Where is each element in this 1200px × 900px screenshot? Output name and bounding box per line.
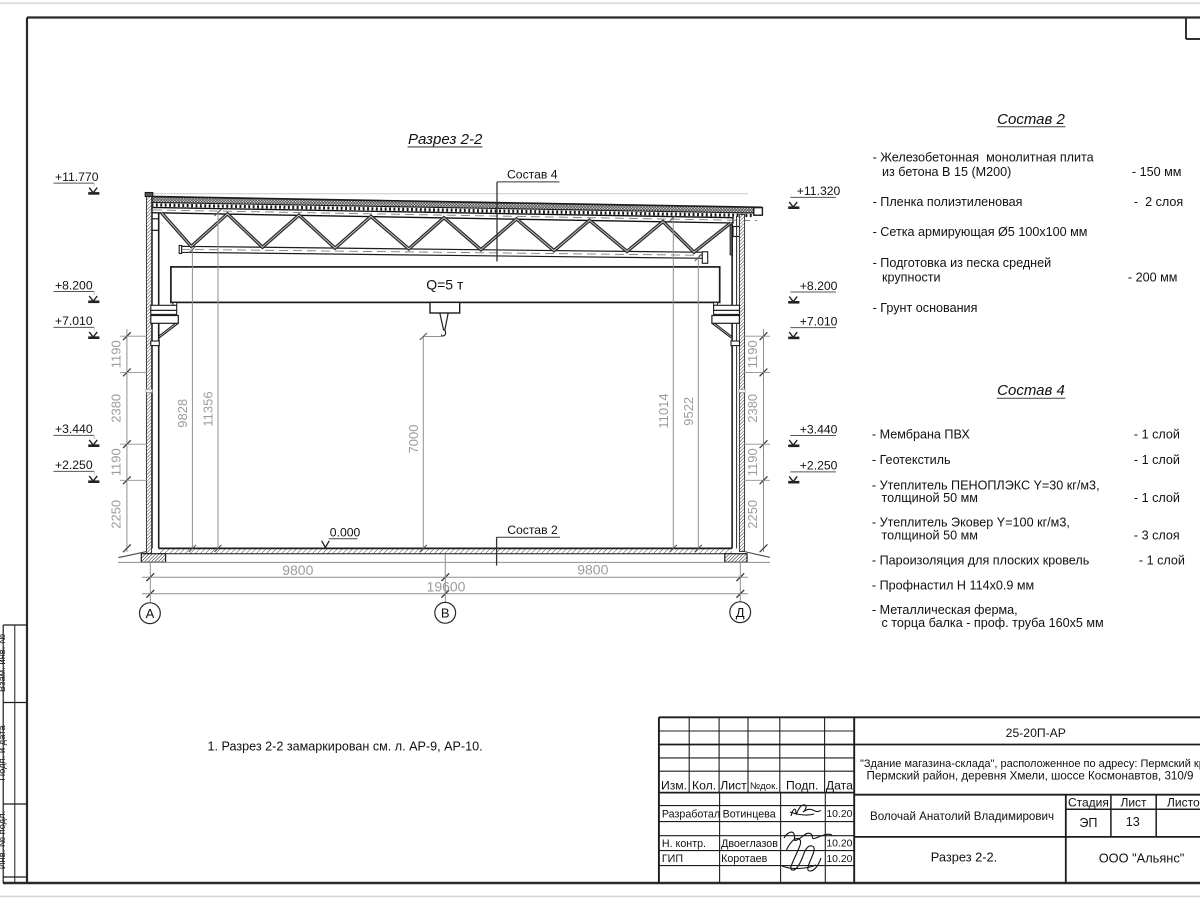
svg-text:- Сетка армирующая Ø5 100х100: - Сетка армирующая Ø5 100х100 мм (873, 225, 1088, 239)
svg-text:Разрез 2-2: Разрез 2-2 (408, 131, 483, 148)
svg-text:2250: 2250 (745, 500, 760, 529)
svg-text:- 1 слой: - 1 слой (1139, 553, 1185, 567)
svg-text:- 2 слоя: - 2 слоя (1134, 195, 1183, 209)
svg-text:11014: 11014 (656, 393, 671, 428)
svg-text:Подп. и дата: Подп. и дата (0, 725, 7, 781)
svg-text:Подп.: Подп. (786, 778, 818, 792)
svg-text:из бетона В 15 (М200): из бетона В 15 (М200) (882, 165, 1011, 179)
svg-text:+8.200: +8.200 (800, 279, 838, 293)
svg-text:- Профнастил Н 114х0.9 мм: - Профнастил Н 114х0.9 мм (872, 578, 1034, 592)
svg-text:11356: 11356 (201, 391, 216, 426)
svg-text:9800: 9800 (577, 561, 608, 577)
svg-text:+11.770: +11.770 (55, 170, 99, 184)
svg-text:- Пленка полиэтиленовая: - Пленка полиэтиленовая (873, 195, 1023, 209)
svg-text:25-20П-АР: 25-20П-АР (1006, 726, 1066, 740)
svg-text:Состав 2: Состав 2 (997, 111, 1065, 128)
svg-text:2380: 2380 (109, 394, 124, 423)
svg-text:- Подготовка из песка средней: - Подготовка из песка средней (873, 256, 1052, 270)
svg-text:+11.320: +11.320 (797, 184, 841, 198)
svg-text:9828: 9828 (175, 399, 190, 428)
svg-text:- 1 слой: - 1 слой (1134, 427, 1180, 441)
svg-text:Лист: Лист (720, 778, 747, 792)
svg-text:10.20: 10.20 (826, 839, 852, 850)
svg-text:+3.440: +3.440 (800, 422, 838, 436)
svg-text:- Грунт основания: - Грунт основания (873, 301, 978, 315)
svg-text:- Геотекстиль: - Геотекстиль (872, 453, 951, 467)
svg-text:- Мембрана ПВХ: - Мембрана ПВХ (872, 427, 970, 441)
svg-text:Разрез 2-2.: Разрез 2-2. (931, 849, 997, 864)
svg-text:Пермский район, деревня Хмели,: Пермский район, деревня Хмели, шоссе Кос… (867, 770, 1194, 783)
svg-text:10.20: 10.20 (826, 854, 852, 865)
svg-text:Д: Д (736, 605, 745, 620)
svg-text:Н. контр.: Н. контр. (662, 838, 706, 850)
svg-text:- 150 мм: - 150 мм (1132, 165, 1182, 179)
svg-text:1. Разрез 2-2 замаркирован см.: 1. Разрез 2-2 замаркирован см. л. АР-9, … (208, 739, 483, 753)
svg-text:Лист: Лист (1120, 796, 1147, 810)
svg-text:9522: 9522 (681, 397, 696, 426)
svg-text:- 200 мм: - 200 мм (1128, 270, 1178, 284)
svg-text:Q=5 т: Q=5 т (426, 277, 464, 293)
svg-text:ГИП: ГИП (662, 853, 683, 865)
svg-text:1190: 1190 (109, 448, 124, 476)
svg-text:с торца балка - проф. труба 16: с торца балка - проф. труба 160х5 мм (882, 616, 1104, 630)
svg-text:+7.010: +7.010 (55, 314, 93, 328)
svg-text:2250: 2250 (109, 500, 124, 529)
svg-text:10.20: 10.20 (826, 809, 852, 820)
svg-text:ООО "Альянс": ООО "Альянс" (1099, 850, 1185, 865)
svg-text:Разработал: Разработал (662, 809, 720, 821)
svg-text:19600: 19600 (427, 579, 466, 595)
svg-text:Состав 2: Состав 2 (507, 523, 558, 537)
svg-text:А: А (146, 606, 155, 621)
svg-text:- Железобетонная монолитная п: - Железобетонная монолитная плита (873, 150, 1094, 164)
svg-text:9800: 9800 (282, 562, 313, 578)
svg-text:Стадия: Стадия (1068, 796, 1109, 810)
svg-text:Состав 4: Состав 4 (997, 382, 1065, 399)
svg-text:- 3 слоя: - 3 слоя (1134, 528, 1180, 542)
svg-text:1190: 1190 (745, 340, 760, 368)
svg-text:1190: 1190 (745, 448, 760, 476)
svg-text:Листов: Листов (1167, 796, 1200, 810)
svg-text:- 1 слой: - 1 слой (1134, 453, 1180, 467)
svg-text:2380: 2380 (745, 394, 760, 423)
svg-text:- Пароизоляция для плоских кро: - Пароизоляция для плоских кровель (872, 553, 1090, 567)
svg-text:толщиной 50 мм: толщиной 50 мм (882, 491, 978, 505)
svg-text:Дата: Дата (826, 778, 853, 792)
svg-text:+8.200: +8.200 (55, 278, 93, 292)
svg-text:Кол.: Кол. (692, 778, 716, 792)
svg-text:Двоеглазов: Двоеглазов (721, 838, 778, 850)
svg-text:№док.: №док. (750, 781, 778, 792)
svg-text:толщиной 50 мм: толщиной 50 мм (882, 528, 978, 542)
svg-text:Изм.: Изм. (661, 778, 687, 792)
svg-text:Волочай Анатолий Владимирович: Волочай Анатолий Владимирович (870, 810, 1054, 823)
svg-text:В: В (441, 605, 450, 620)
svg-text:7000: 7000 (406, 425, 421, 454)
svg-text:Взам. инв. №: Взам. инв. № (0, 634, 7, 692)
svg-text:"Здание магазина-склада", расп: "Здание магазина-склада", расположенное … (860, 758, 1200, 770)
svg-text:Состав 4: Состав 4 (507, 168, 558, 182)
svg-text:- Металлическая ферма,: - Металлическая ферма, (872, 603, 1018, 617)
svg-text:+3.440: +3.440 (55, 422, 93, 436)
svg-text:крупности: крупности (882, 270, 941, 284)
svg-text:+7.010: +7.010 (800, 314, 838, 328)
svg-text:13: 13 (1126, 815, 1140, 829)
svg-text:+2.250: +2.250 (800, 459, 838, 473)
svg-text:0.000: 0.000 (330, 526, 361, 540)
svg-text:Инв. № подл.: Инв. № подл. (0, 811, 7, 869)
svg-text:Коротаев: Коротаев (721, 853, 767, 865)
svg-text:- 1 слой: - 1 слой (1134, 491, 1180, 505)
svg-text:ЭП: ЭП (1079, 816, 1097, 830)
svg-text:1190: 1190 (109, 340, 124, 368)
svg-text:+2.250: +2.250 (55, 458, 93, 472)
svg-text:Вотинцева: Вотинцева (723, 809, 776, 821)
